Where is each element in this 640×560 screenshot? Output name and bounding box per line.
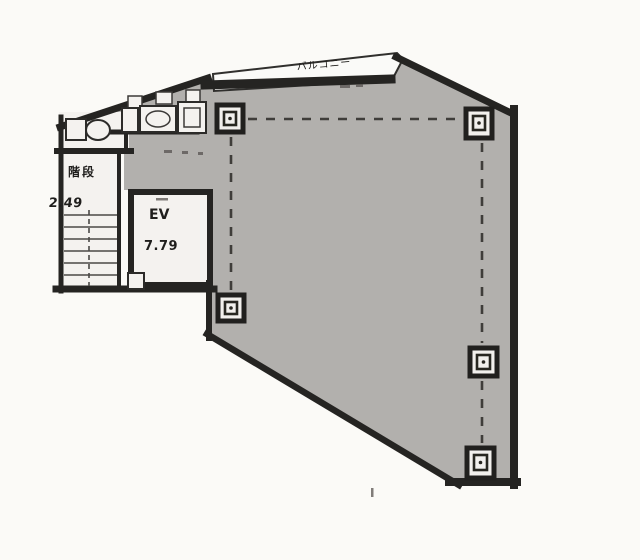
wc-toilet-bowl bbox=[86, 120, 110, 140]
column-top-center bbox=[217, 105, 243, 132]
wc-toilet-tank bbox=[66, 119, 86, 140]
column-middle-left bbox=[218, 295, 244, 321]
wall-top bbox=[205, 79, 391, 85]
urinal-fixture bbox=[186, 90, 200, 102]
washroom-cabinet bbox=[122, 108, 138, 132]
elevator-door-detail bbox=[128, 273, 144, 289]
floor-plan-page: バルコニー 階段 2.49 EV 7.79 bbox=[0, 0, 640, 560]
column-middle-right bbox=[470, 348, 497, 376]
column-bottom-right bbox=[467, 448, 494, 478]
elevator-label: EV bbox=[149, 207, 170, 223]
sink-basin bbox=[146, 111, 170, 127]
urinal-fixture bbox=[156, 92, 172, 104]
column-top-right bbox=[466, 109, 492, 138]
elevator-area-value: 7.79 bbox=[144, 239, 178, 254]
stairs-label: 階段 bbox=[68, 164, 96, 179]
stairs-area-value: 2.49 bbox=[48, 196, 84, 211]
toilet-stall-inner bbox=[184, 108, 200, 127]
floor-plan-drawing: バルコニー 階段 2.49 EV 7.79 bbox=[0, 0, 640, 560]
